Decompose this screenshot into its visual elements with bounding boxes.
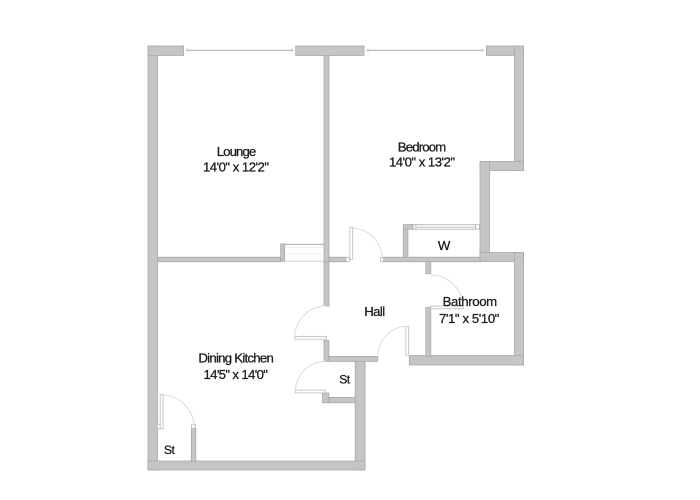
svg-text:Bathroom: Bathroom <box>443 294 498 309</box>
svg-text:14'5" x 14'0": 14'5" x 14'0" <box>203 367 268 382</box>
svg-text:St: St <box>164 443 176 457</box>
svg-text:Lounge: Lounge <box>217 144 257 159</box>
svg-text:St: St <box>339 373 351 387</box>
svg-text:7'1" x 5'10": 7'1" x 5'10" <box>439 311 500 326</box>
svg-text:14'0" x 13'2": 14'0" x 13'2" <box>389 154 455 169</box>
svg-text:Bedroom: Bedroom <box>398 140 447 155</box>
svg-text:14'0" x 12'2": 14'0" x 12'2" <box>203 160 269 175</box>
svg-text:Hall: Hall <box>364 304 385 319</box>
svg-text:Dining Kitchen: Dining Kitchen <box>198 350 274 365</box>
svg-text:W: W <box>438 238 451 253</box>
